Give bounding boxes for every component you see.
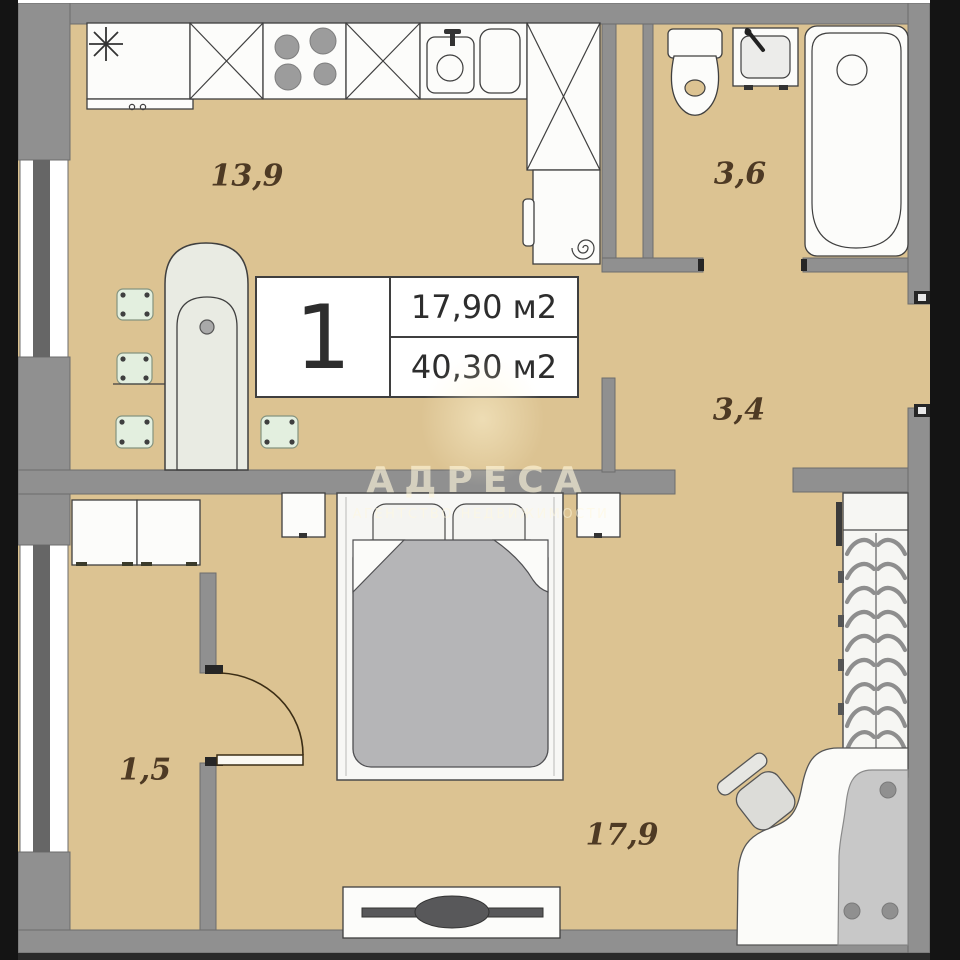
- balcony-cabinet: [72, 500, 137, 565]
- washing-machine: [533, 170, 600, 264]
- wall-kitchen-bedroom: [18, 470, 675, 494]
- nightstand-left: [282, 493, 325, 537]
- bathroom-door-jamb: [698, 259, 704, 271]
- wall-kitchen-hall: [602, 378, 615, 472]
- wall-hall-stub: [793, 468, 908, 492]
- left-black-bar: [0, 0, 18, 960]
- door-jamb: [205, 665, 223, 674]
- balcony-window: [20, 545, 68, 852]
- tv-stand: [343, 887, 560, 938]
- bathroom-sink: [733, 28, 798, 90]
- kitchen-cabinet: [480, 29, 520, 93]
- bathtub: [805, 26, 908, 256]
- right-black-bar: [930, 0, 960, 960]
- tv: [415, 896, 489, 928]
- snowflake-icon: [89, 27, 123, 61]
- bedroom-door-frame: [836, 502, 842, 546]
- wall-right-lower: [908, 408, 930, 953]
- bathroom-door-jamb: [801, 259, 807, 271]
- floor-plan: 13,9 3,6 3,4 1,5 17,9 1 17,90 м2 40,30 м…: [0, 0, 960, 960]
- toilet: [668, 29, 722, 115]
- wall-balcony-upper: [200, 573, 216, 673]
- fridge-counter: [87, 23, 190, 99]
- toilet-bowl-hole: [685, 80, 705, 96]
- duvet: [353, 540, 548, 767]
- bottom-edge: [18, 953, 930, 960]
- wall-bathroom-bottom-left: [602, 258, 703, 272]
- wall-balcony-lower: [200, 763, 216, 930]
- wall-shaft-left: [602, 24, 616, 262]
- wall-bathroom-bottom-right: [803, 258, 908, 272]
- wall-bathroom-left: [643, 24, 653, 258]
- nightstand-right: [577, 493, 620, 537]
- sink-bracket: [779, 85, 788, 90]
- wall-left-mid: [18, 357, 70, 545]
- sink-bracket: [744, 85, 753, 90]
- wall-top: [18, 3, 930, 24]
- desk-panel: [838, 770, 908, 945]
- balcony-cabinet: [137, 500, 200, 565]
- table-knob: [200, 320, 214, 334]
- floor-plan-drawing: [0, 0, 960, 960]
- wall-right-upper: [908, 3, 930, 304]
- washer-door: [523, 199, 534, 246]
- top-margin: [18, 0, 930, 3]
- kitchen-window: [20, 160, 68, 357]
- door-leaf: [217, 755, 303, 765]
- wall-left-upper: [18, 3, 70, 160]
- wardrobe: [836, 493, 908, 777]
